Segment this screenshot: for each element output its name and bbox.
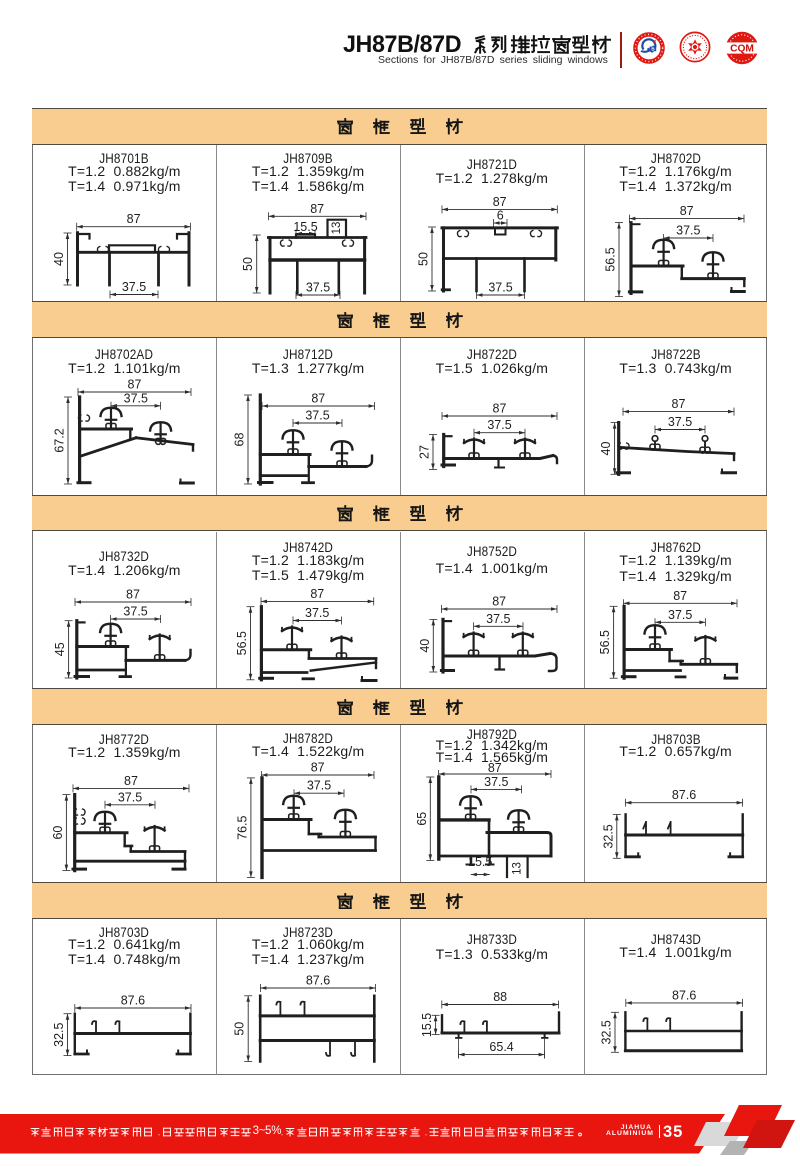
svg-text:37.5: 37.5 (307, 778, 331, 792)
svg-text:87: 87 (312, 392, 326, 406)
svg-text:88: 88 (493, 990, 507, 1004)
svg-text:87: 87 (673, 588, 687, 602)
svg-text:76.5: 76.5 (236, 815, 250, 839)
svg-text:32.5: 32.5 (601, 824, 615, 848)
svg-text:CQM: CQM (730, 44, 754, 55)
svg-text:32.5: 32.5 (52, 1022, 66, 1046)
svg-text:40: 40 (418, 638, 432, 652)
svg-text:87: 87 (493, 194, 507, 208)
svg-text:45: 45 (53, 642, 67, 656)
svg-text:37.5: 37.5 (488, 280, 512, 294)
svg-text:13: 13 (512, 862, 524, 875)
svg-text:37.5: 37.5 (306, 280, 330, 294)
svg-text:37.5: 37.5 (117, 790, 141, 804)
svg-text:87: 87 (671, 397, 685, 411)
svg-text:87: 87 (126, 587, 140, 601)
svg-text:87: 87 (488, 760, 502, 774)
svg-text:37.5: 37.5 (484, 774, 508, 788)
svg-text:87: 87 (680, 204, 694, 218)
svg-text:87.6: 87.6 (672, 788, 696, 802)
svg-text:37.5: 37.5 (668, 607, 692, 621)
svg-text:87.6: 87.6 (306, 974, 330, 988)
svg-text:65.4: 65.4 (489, 1040, 513, 1054)
svg-text:40: 40 (599, 442, 613, 456)
svg-text:87: 87 (126, 212, 140, 226)
svg-text:15.5: 15.5 (420, 1013, 434, 1037)
svg-text:37.5: 37.5 (486, 611, 510, 625)
svg-text:13: 13 (331, 221, 343, 234)
svg-text:56.5: 56.5 (603, 247, 617, 271)
svg-text:67.2: 67.2 (52, 428, 66, 452)
svg-text:50: 50 (233, 1022, 247, 1036)
svg-text:87: 87 (493, 402, 507, 416)
svg-text:50: 50 (241, 257, 255, 271)
svg-text:37.5: 37.5 (676, 223, 700, 237)
svg-text:87: 87 (124, 773, 138, 787)
svg-text:87: 87 (127, 378, 141, 392)
svg-text:68: 68 (233, 433, 247, 447)
svg-text:15.5: 15.5 (294, 220, 318, 234)
svg-text:60: 60 (50, 825, 64, 839)
svg-text:87: 87 (311, 760, 325, 774)
svg-text:50: 50 (417, 252, 431, 266)
svg-text:65: 65 (415, 811, 429, 825)
svg-text:87: 87 (310, 201, 324, 215)
svg-text:87: 87 (492, 594, 506, 608)
svg-text:37.5: 37.5 (123, 604, 147, 618)
svg-text:87.6: 87.6 (120, 994, 144, 1008)
svg-text:56.5: 56.5 (598, 629, 612, 653)
svg-text:40: 40 (52, 252, 66, 266)
svg-text:27: 27 (418, 445, 432, 459)
svg-text:56.5: 56.5 (235, 630, 249, 654)
svg-text:6: 6 (497, 208, 504, 222)
svg-text:87: 87 (311, 586, 325, 600)
svg-text:37.5: 37.5 (123, 391, 147, 405)
svg-text:37.5: 37.5 (487, 418, 511, 432)
svg-text:37.5: 37.5 (306, 409, 330, 423)
svg-text:37.5: 37.5 (668, 415, 692, 429)
svg-text:32.5: 32.5 (599, 1020, 613, 1044)
svg-text:37.5: 37.5 (305, 606, 329, 620)
svg-text:37.5: 37.5 (121, 280, 145, 294)
svg-text:87.6: 87.6 (672, 988, 696, 1002)
